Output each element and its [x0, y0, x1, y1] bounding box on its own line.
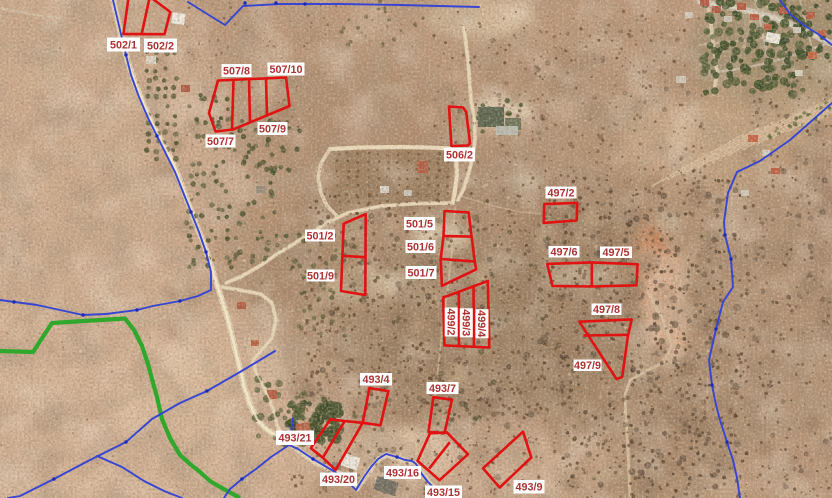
svg-text:507/8: 507/8	[223, 65, 250, 77]
svg-text:507/7: 507/7	[207, 136, 234, 148]
svg-text:499/3: 499/3	[459, 309, 471, 336]
svg-text:493/4: 493/4	[362, 374, 389, 386]
svg-text:501/7: 501/7	[407, 267, 434, 279]
svg-text:507/10: 507/10	[269, 64, 302, 76]
svg-text:499/4: 499/4	[475, 310, 487, 337]
svg-text:502/1: 502/1	[110, 39, 137, 51]
svg-text:501/9: 501/9	[307, 270, 334, 282]
svg-text:497/8: 497/8	[593, 304, 620, 316]
svg-text:493/16: 493/16	[386, 467, 419, 479]
svg-text:497/2: 497/2	[547, 187, 574, 199]
svg-text:497/9: 497/9	[574, 360, 601, 372]
svg-text:507/9: 507/9	[259, 123, 286, 135]
svg-text:493/7: 493/7	[429, 383, 456, 395]
svg-text:493/21: 493/21	[278, 433, 311, 445]
svg-text:499/2: 499/2	[444, 308, 456, 335]
svg-text:501/6: 501/6	[407, 241, 434, 253]
svg-text:497/5: 497/5	[602, 247, 629, 259]
svg-text:506/2: 506/2	[446, 149, 473, 161]
svg-text:493/20: 493/20	[322, 474, 355, 486]
svg-text:493/15: 493/15	[427, 487, 460, 498]
svg-text:493/9: 493/9	[515, 482, 542, 494]
svg-text:501/2: 501/2	[306, 230, 333, 242]
svg-text:501/5: 501/5	[406, 218, 433, 230]
svg-text:497/6: 497/6	[550, 247, 577, 259]
svg-text:502/2: 502/2	[147, 40, 174, 52]
